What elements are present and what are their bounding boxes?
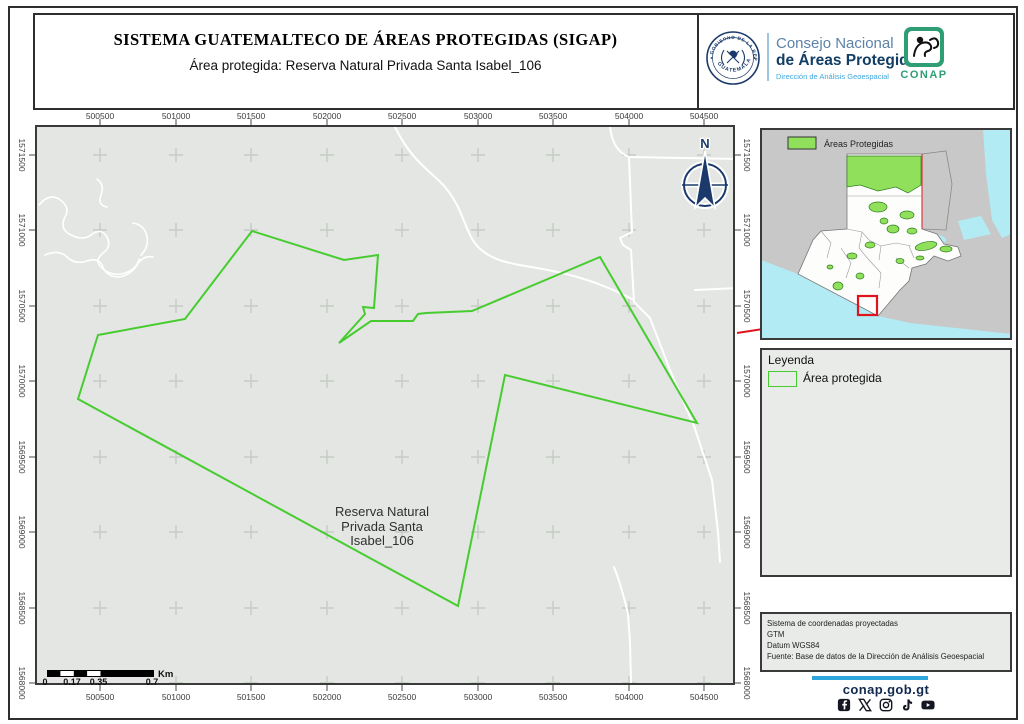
x-axis-label-top: 502500 xyxy=(388,111,416,121)
svg-text:Km: Km xyxy=(158,669,173,680)
source-line: Fuente: Base de datos de la Dirección de… xyxy=(767,651,1005,662)
tiktok-icon xyxy=(900,698,914,712)
y-axis-label-right: 1569500 xyxy=(742,440,752,473)
x-axis-label-bottom: 501000 xyxy=(162,692,190,702)
page-title: SISTEMA GUATEMALTECO DE ÁREAS PROTEGIDAS… xyxy=(38,30,693,50)
map-canvas: N Km Reserva NaturalPrivada SantaIsabel_… xyxy=(35,125,735,685)
x-axis-label-top: 503500 xyxy=(539,111,567,121)
conap-logo-icon xyxy=(903,26,945,68)
y-axis-label-left: 1569000 xyxy=(17,515,27,548)
x-axis-label-bottom: 501500 xyxy=(237,692,265,702)
y-axis-label-left: 1570500 xyxy=(17,289,27,322)
x-axis-label-bottom: 502500 xyxy=(388,692,416,702)
overview-map: Áreas Protegidas xyxy=(760,128,1012,340)
scalebar-value: 0.35 xyxy=(90,677,108,687)
north-arrow-icon: N xyxy=(682,136,728,208)
river-lines xyxy=(39,179,153,277)
y-axis-label-left: 1568500 xyxy=(17,591,27,624)
scalebar-value: 0.17 xyxy=(63,677,81,687)
overview-graphics: Áreas Protegidas xyxy=(762,130,1010,338)
scalebar-value: 0 xyxy=(42,677,47,687)
government-seal-icon: GOBIERNO DE LA REPÚBLICA GUATEMALA xyxy=(705,30,761,86)
sigap-map-page: { "header": { "title": "SISTEMA GUATEMAL… xyxy=(0,0,1024,724)
legend-title: Leyenda xyxy=(768,353,814,367)
reserve-name-line: Privada Santa xyxy=(287,520,477,535)
reserve-name-label: Reserva NaturalPrivada SantaIsabel_106 xyxy=(287,505,477,549)
svg-text:N: N xyxy=(700,136,709,151)
y-axis-label-left: 1569500 xyxy=(17,440,27,473)
crs-line: Sistema de coordenadas proyectadas xyxy=(767,618,1005,629)
credits-panel: Sistema de coordenadas proyectadas GTM D… xyxy=(760,612,1012,672)
y-axis-label-right: 1568000 xyxy=(742,666,752,699)
map-graphics: N Km xyxy=(37,127,733,683)
footer-accent-bar xyxy=(812,676,928,680)
x-axis-label-bottom: 502000 xyxy=(313,692,341,702)
x-axis-label-bottom: 504000 xyxy=(615,692,643,702)
org-name-line3: Dirección de Análisis Geoespacial xyxy=(776,72,889,81)
facebook-icon xyxy=(837,698,851,712)
logo-separator xyxy=(767,33,769,81)
legend-panel xyxy=(760,348,1012,577)
grid-crosses xyxy=(93,148,711,683)
reserve-name-line: Reserva Natural xyxy=(287,505,477,520)
reserve-name-line: Isabel_106 xyxy=(287,534,477,549)
x-axis-label-top: 504000 xyxy=(615,111,643,121)
protected-area-swatch xyxy=(768,371,797,387)
x-axis-label-bottom: 500500 xyxy=(86,692,114,702)
y-axis-label-right: 1571500 xyxy=(742,138,752,171)
legend-item-label: Área protegida xyxy=(803,371,882,385)
y-axis-label-left: 1571000 xyxy=(17,213,27,246)
overview-legend-swatch xyxy=(788,137,816,149)
x-axis-label-top: 501500 xyxy=(237,111,265,121)
y-axis-label-right: 1571000 xyxy=(742,213,752,246)
x-axis-label-top: 504500 xyxy=(690,111,718,121)
x-axis-label-top: 502000 xyxy=(313,111,341,121)
x-axis-label-bottom: 504500 xyxy=(690,692,718,702)
youtube-icon xyxy=(921,698,935,712)
y-axis-label-left: 1570000 xyxy=(17,364,27,397)
datum-line: Datum WGS84 xyxy=(767,640,1005,651)
y-axis-label-left: 1571500 xyxy=(17,138,27,171)
org-name-line1: Consejo Nacional xyxy=(776,35,894,52)
header-divider xyxy=(697,13,699,110)
x-axis-label-top: 503000 xyxy=(464,111,492,121)
conap-label: CONAP xyxy=(899,69,949,81)
x-icon xyxy=(858,698,872,712)
x-axis-label-top: 501000 xyxy=(162,111,190,121)
overview-legend-label: Áreas Protegidas xyxy=(824,139,894,149)
y-axis-label-right: 1568500 xyxy=(742,591,752,624)
y-axis-label-left: 1568000 xyxy=(17,666,27,699)
instagram-icon xyxy=(879,698,893,712)
x-axis-label-top: 500500 xyxy=(86,111,114,121)
y-axis-label-right: 1569000 xyxy=(742,515,752,548)
x-axis-label-bottom: 503000 xyxy=(464,692,492,702)
x-axis-label-bottom: 503500 xyxy=(539,692,567,702)
website-link: conap.gob.gt xyxy=(760,682,1012,697)
y-axis-label-right: 1570500 xyxy=(742,289,752,322)
y-axis-label-right: 1570000 xyxy=(742,364,752,397)
grid-cross-icon xyxy=(93,148,711,683)
page-subtitle: Área protegida: Reserva Natural Privada … xyxy=(38,58,693,73)
social-icons xyxy=(760,698,1012,712)
scalebar-value: 0.7 xyxy=(146,677,159,687)
projection-line: GTM xyxy=(767,629,1005,640)
